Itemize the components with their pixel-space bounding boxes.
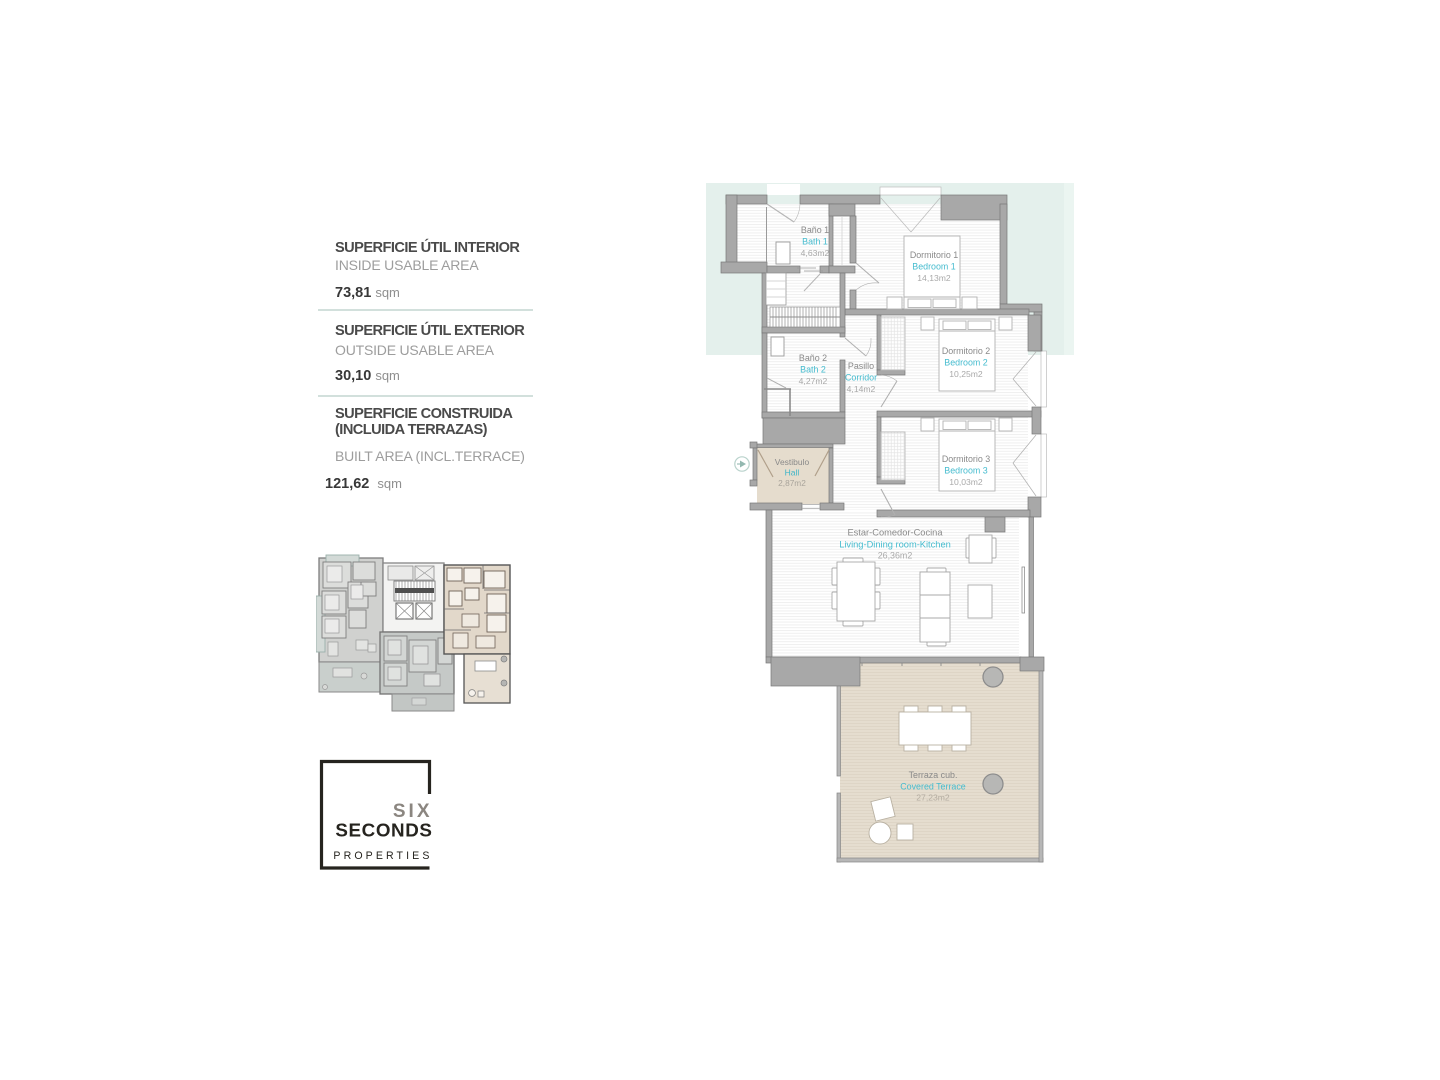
svg-text:4,14m2: 4,14m2 (847, 384, 876, 394)
svg-text:Dormitorio 3: Dormitorio 3 (942, 454, 990, 464)
svg-text:Vestibulo: Vestibulo (775, 457, 810, 467)
svg-text:4,27m2: 4,27m2 (799, 376, 828, 386)
svg-text:Bedroom 2: Bedroom 2 (944, 358, 987, 368)
svg-text:27,23m2: 27,23m2 (916, 793, 950, 803)
svg-text:Bedroom 3: Bedroom 3 (944, 466, 987, 476)
svg-text:Covered Terrace: Covered Terrace (900, 782, 966, 792)
svg-text:Dormitorio 1: Dormitorio 1 (910, 250, 958, 260)
svg-text:Bath 1: Bath 1 (802, 237, 828, 247)
svg-text:Terraza cub.: Terraza cub. (909, 770, 958, 780)
svg-text:26,36m2: 26,36m2 (878, 551, 913, 561)
svg-text:Baño 1: Baño 1 (801, 225, 829, 235)
svg-text:Estar-Comedor-Cocina: Estar-Comedor-Cocina (847, 528, 943, 538)
svg-text:Bath 2: Bath 2 (800, 365, 826, 375)
svg-text:2,87m2: 2,87m2 (778, 478, 806, 488)
svg-text:Baño 2: Baño 2 (799, 353, 827, 363)
svg-text:4,63m2: 4,63m2 (801, 248, 830, 258)
svg-text:PROPERTIES: PROPERTIES (333, 850, 432, 862)
svg-text:10,03m2: 10,03m2 (949, 477, 983, 487)
svg-text:Hall: Hall (785, 468, 800, 478)
svg-text:Corridor: Corridor (845, 373, 877, 383)
svg-text:Living-Dining room-Kitchen: Living-Dining room-Kitchen (839, 540, 951, 550)
svg-text:Dormitorio 2: Dormitorio 2 (942, 346, 990, 356)
svg-text:Pasillo: Pasillo (848, 361, 874, 371)
svg-text:10,25m2: 10,25m2 (949, 369, 983, 379)
svg-text:Bedroom 1: Bedroom 1 (912, 262, 955, 272)
svg-text:14,13m2: 14,13m2 (917, 273, 951, 283)
svg-text:SECONDS: SECONDS (335, 820, 432, 841)
